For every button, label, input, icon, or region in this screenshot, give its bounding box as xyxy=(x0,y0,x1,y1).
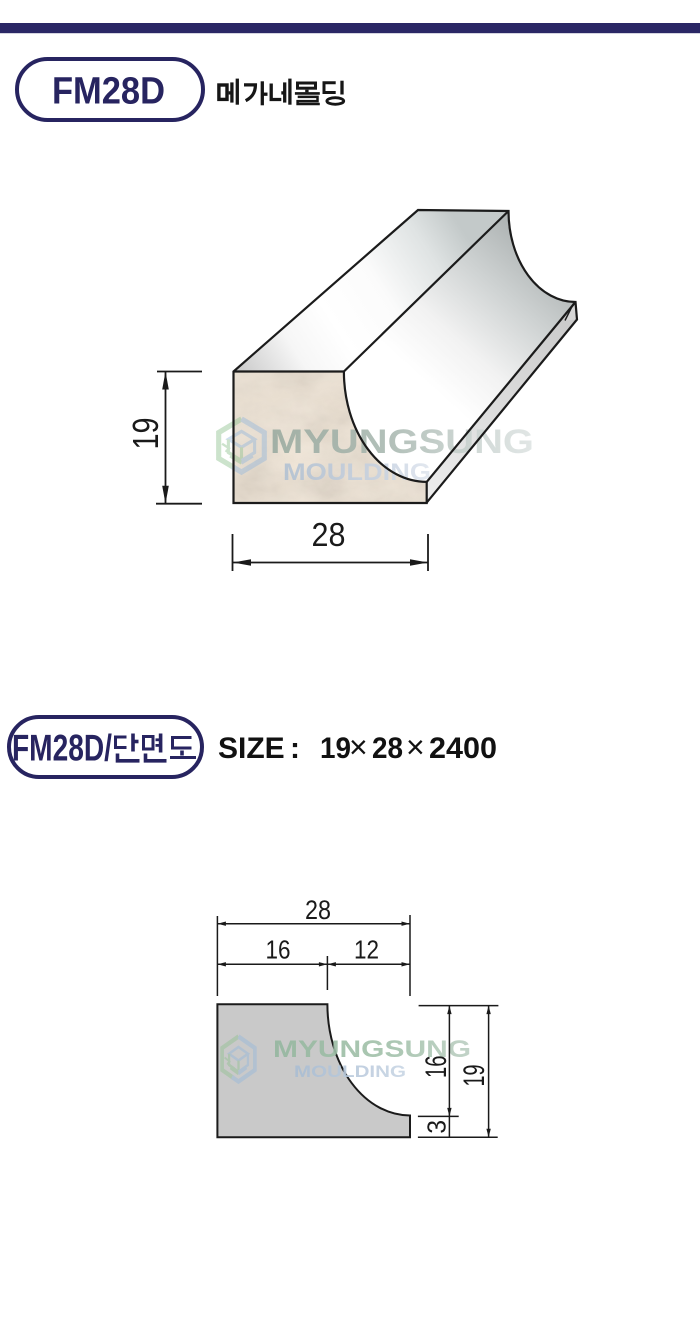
svg-text:×: × xyxy=(349,729,368,765)
svg-text:19: 19 xyxy=(458,1065,491,1087)
svg-text:2400: 2400 xyxy=(429,732,497,765)
svg-text:28: 28 xyxy=(312,516,346,553)
svg-text:FM28D/: FM28D/ xyxy=(12,728,112,769)
svg-text:16: 16 xyxy=(420,1056,453,1079)
svg-text:28: 28 xyxy=(372,732,403,765)
svg-text:19: 19 xyxy=(320,732,351,765)
svg-text:12: 12 xyxy=(354,935,379,965)
svg-text:3: 3 xyxy=(422,1120,452,1134)
svg-text:FM28D: FM28D xyxy=(52,71,165,113)
svg-text:MOULDING: MOULDING xyxy=(294,1062,406,1081)
svg-text:28: 28 xyxy=(305,895,331,925)
svg-text:MYUNGSUNG: MYUNGSUNG xyxy=(270,423,534,461)
svg-text:MOULDING: MOULDING xyxy=(283,459,431,486)
svg-text:SIZE:: SIZE: xyxy=(218,732,300,765)
svg-text:19: 19 xyxy=(125,418,166,450)
svg-text:16: 16 xyxy=(266,935,291,965)
svg-text:×: × xyxy=(406,729,425,765)
